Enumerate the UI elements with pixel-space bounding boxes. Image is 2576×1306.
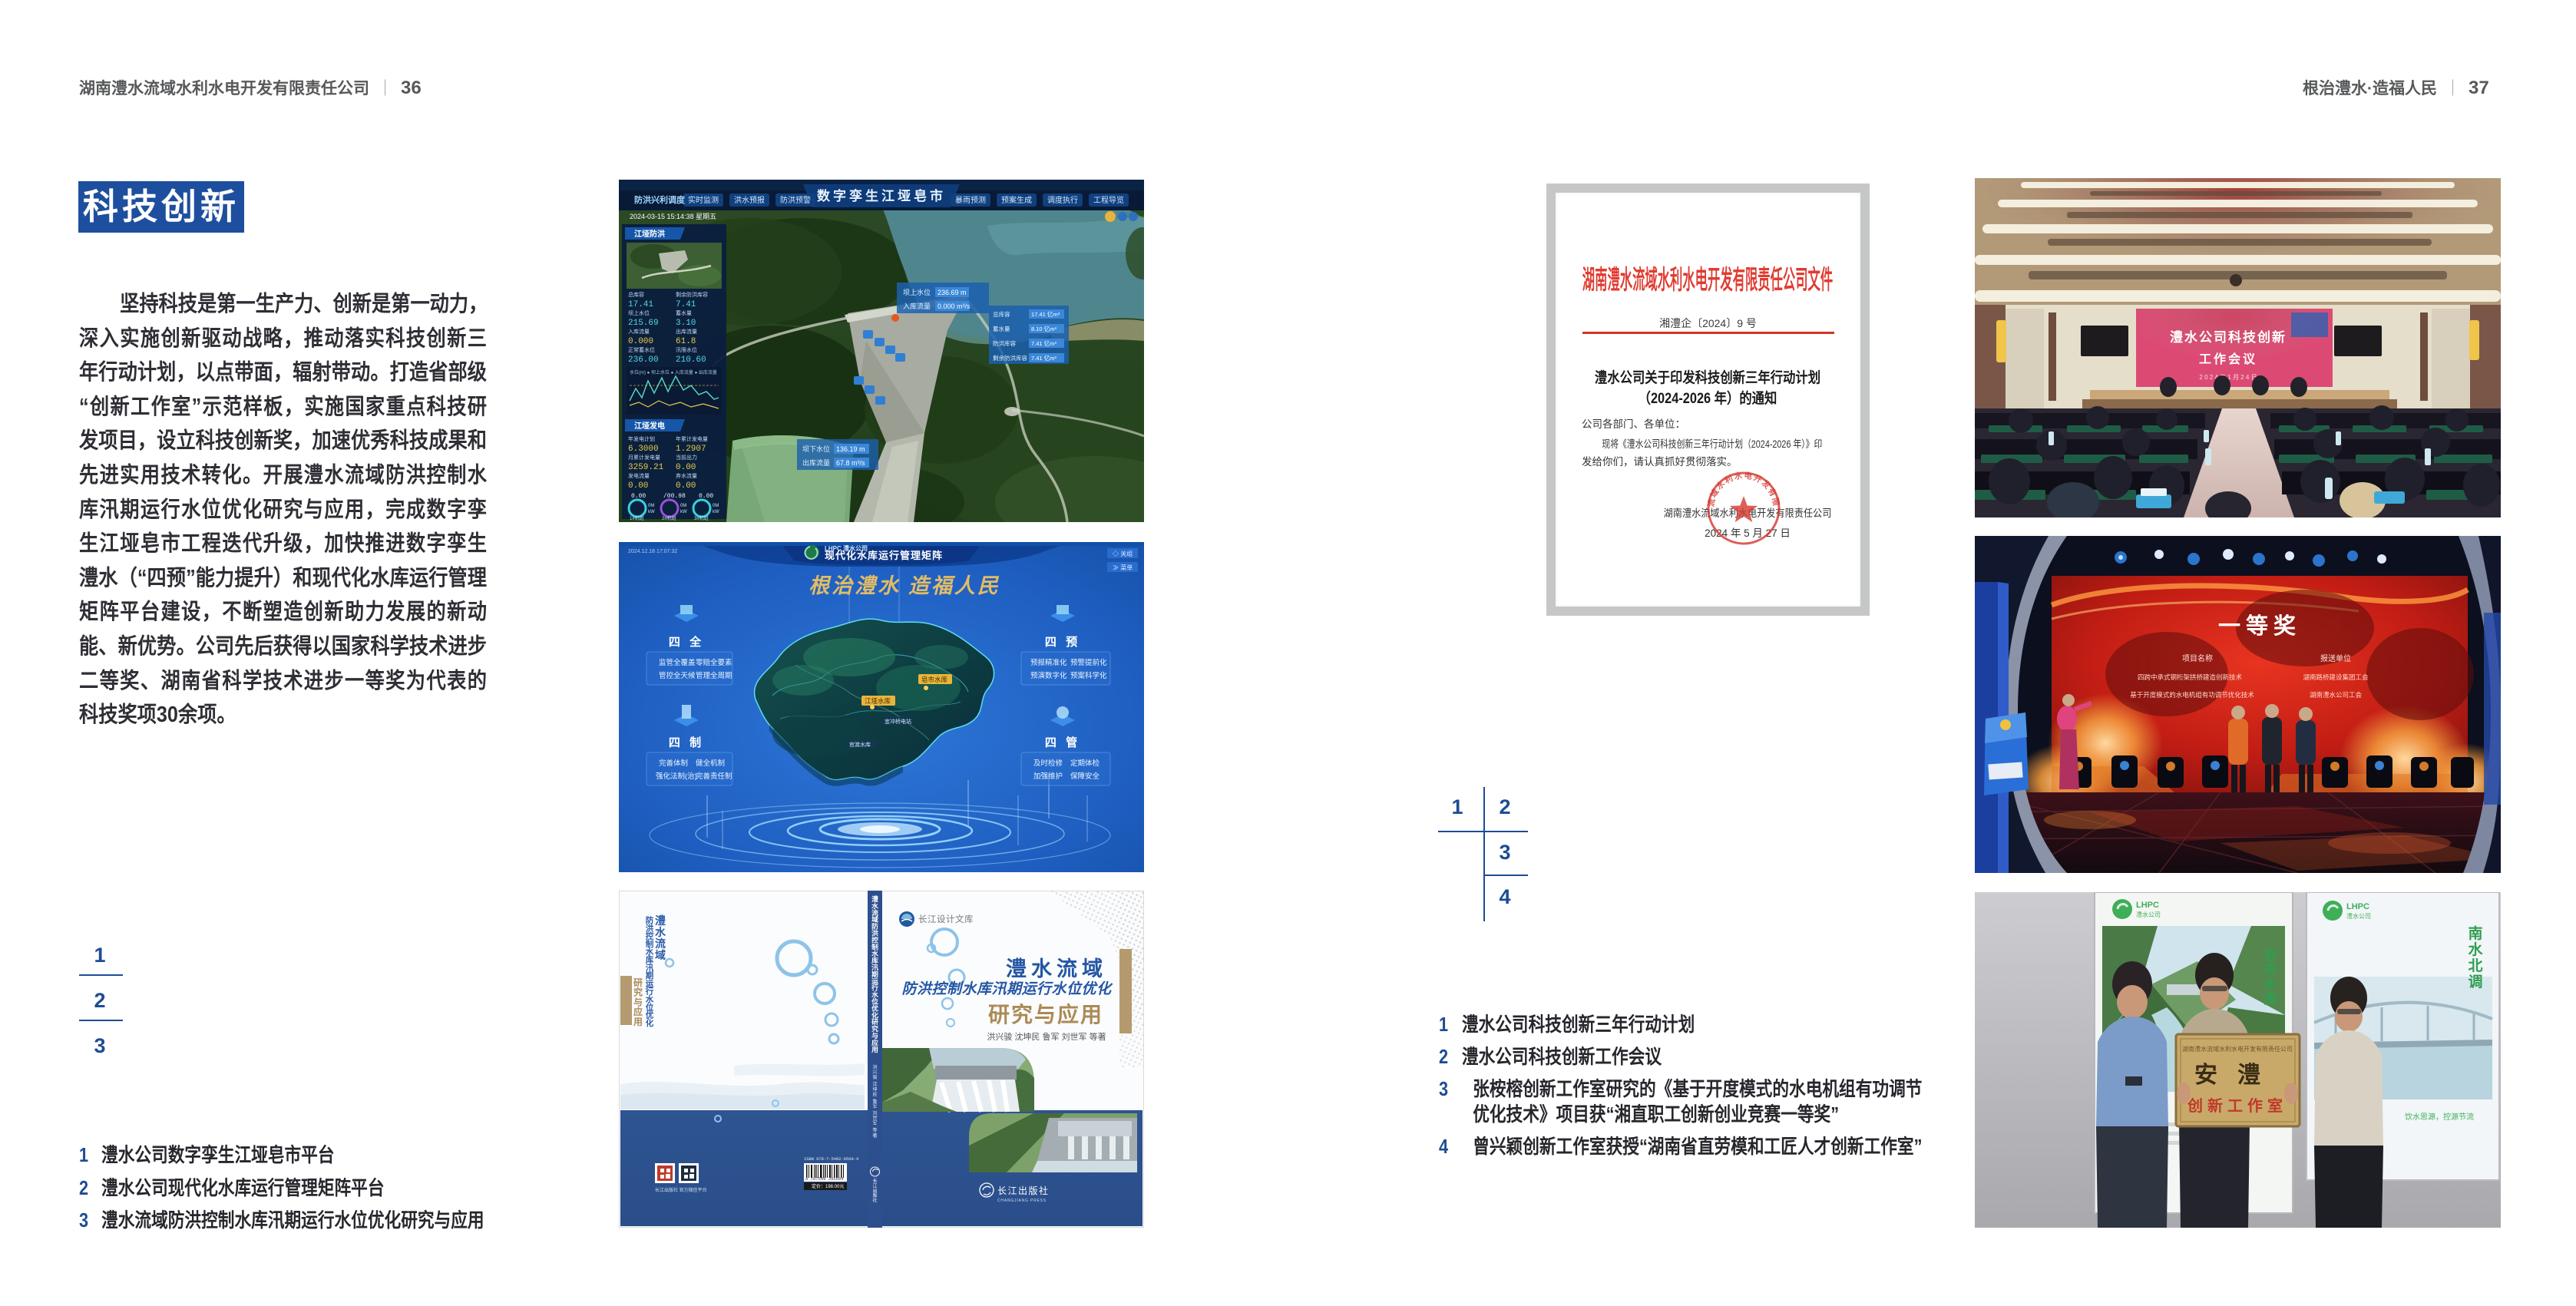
svg-text:湖南澧水公司工会: 湖南澧水公司工会 bbox=[2310, 691, 2363, 699]
svg-text:饮水思源，控源节流: 饮水思源，控源节流 bbox=[2405, 1112, 2474, 1122]
svg-text:kW: kW bbox=[680, 510, 687, 514]
svg-text:水位(m) ● 坝上水位 ● 入库流量 ● 出库流量: 水位(m) ● 坝上水位 ● 入库流量 ● 出库流量 bbox=[630, 369, 717, 375]
svg-text:kW: kW bbox=[713, 510, 719, 514]
svg-text:加强维护: 加强维护 bbox=[1033, 772, 1063, 781]
svg-text:0.000: 0.000 bbox=[628, 337, 653, 346]
svg-text:预警提前化: 预警提前化 bbox=[1070, 658, 1107, 667]
svg-text:年累计发电量: 年累计发电量 bbox=[676, 435, 708, 443]
svg-text:蓄水量: 蓄水量 bbox=[676, 309, 692, 317]
svg-text:136.19 m: 136.19 m bbox=[836, 445, 865, 453]
svg-text:7.41 亿m³: 7.41 亿m³ bbox=[1031, 354, 1057, 362]
svg-text:预报精准化: 预报精准化 bbox=[1030, 658, 1067, 667]
svg-text:215.69: 215.69 bbox=[628, 319, 659, 328]
svg-text:完善体制: 完善体制 bbox=[659, 759, 688, 768]
svg-text:LHPC: LHPC bbox=[2136, 901, 2159, 910]
svg-text:数字孪生江垭皂市: 数字孪生江垭皂市 bbox=[817, 188, 946, 203]
svg-text:3#机组: 3#机组 bbox=[694, 515, 709, 521]
svg-text:长江出版社: 长江出版社 bbox=[872, 1178, 877, 1204]
svg-text:1#机组: 1#机组 bbox=[630, 515, 644, 521]
svg-text:入库流量: 入库流量 bbox=[903, 302, 931, 310]
svg-text:调度执行: 调度执行 bbox=[1047, 195, 1078, 205]
svg-text:坝下水位: 坝下水位 bbox=[802, 445, 830, 453]
svg-text:防洪预警: 防洪预警 bbox=[780, 195, 811, 205]
svg-text:江垭发电: 江垭发电 bbox=[634, 421, 665, 431]
svg-text:江垭防洪: 江垭防洪 bbox=[634, 229, 665, 239]
svg-text:/00.98: /00.98 bbox=[663, 493, 686, 500]
svg-text:澧水流域: 澧水流域 bbox=[655, 914, 666, 961]
svg-text:南水北调: 南水北调 bbox=[2468, 925, 2483, 990]
svg-text:根治澧水 造福人民: 根治澧水 造福人民 bbox=[809, 574, 1000, 597]
svg-text:8.10 亿m³: 8.10 亿m³ bbox=[1031, 325, 1057, 332]
svg-text:坝上水位: 坝上水位 bbox=[903, 288, 931, 296]
svg-text:2#机组: 2#机组 bbox=[662, 515, 676, 521]
svg-text:坝上水位: 坝上水位 bbox=[628, 309, 650, 317]
svg-text:湖南澧水流域水利水电开发有限责任公司: 湖南澧水流域水利水电开发有限责任公司 bbox=[2182, 1045, 2293, 1053]
svg-text:官渡水库: 官渡水库 bbox=[849, 741, 871, 748]
svg-text:澧水公司: 澧水公司 bbox=[2346, 912, 2371, 920]
svg-text:澧水流域: 澧水流域 bbox=[1006, 957, 1107, 980]
svg-text:2024-03-15 15:14:38 星期五: 2024-03-15 15:14:38 星期五 bbox=[630, 213, 716, 220]
svg-text:预案生成: 预案生成 bbox=[1001, 195, 1032, 205]
svg-text:防洪控制水库汛期运行水位优化: 防洪控制水库汛期运行水位优化 bbox=[645, 915, 654, 1028]
svg-text:防洪控制水库汛期运行水位优化: 防洪控制水库汛期运行水位优化 bbox=[901, 980, 1113, 997]
svg-text:17.41: 17.41 bbox=[628, 300, 653, 309]
svg-text:零赔全要素: 零赔全要素 bbox=[696, 658, 732, 667]
svg-text:健全机制: 健全机制 bbox=[696, 759, 725, 768]
svg-text:宜冲桥电站: 宜冲桥电站 bbox=[885, 718, 911, 725]
svg-text:7.41: 7.41 bbox=[676, 300, 696, 309]
svg-text:◇ 关组: ◇ 关组 bbox=[1113, 550, 1133, 557]
svg-text:防洪库容: 防洪库容 bbox=[993, 339, 1016, 347]
svg-text:洪水预报: 洪水预报 bbox=[734, 195, 765, 205]
svg-text:四 全: 四 全 bbox=[669, 635, 704, 649]
svg-text:长江出版社: 长江出版社 bbox=[997, 1185, 1050, 1196]
svg-text:报送单位: 报送单位 bbox=[2320, 653, 2351, 663]
svg-text:0M: 0M bbox=[713, 504, 719, 508]
svg-text:皂市水库: 皂市水库 bbox=[921, 676, 948, 683]
svg-text:0M: 0M bbox=[680, 504, 686, 508]
svg-text:管控全天候: 管控全天候 bbox=[659, 671, 696, 680]
svg-text:年发电计划: 年发电计划 bbox=[628, 435, 655, 443]
svg-text:项目名称: 项目名称 bbox=[2182, 653, 2213, 663]
svg-text:工程导览: 工程导览 bbox=[1093, 195, 1124, 205]
svg-text:预案科学化: 预案科学化 bbox=[1070, 671, 1107, 680]
svg-text:一等奖: 一等奖 bbox=[2218, 613, 2301, 639]
svg-text:汛限水位: 汛限水位 bbox=[676, 346, 697, 354]
svg-text:0.00: 0.00 bbox=[676, 463, 696, 472]
svg-text:研究与应用: 研究与应用 bbox=[988, 1002, 1103, 1027]
svg-text:6.3000: 6.3000 bbox=[628, 445, 659, 454]
svg-text:发电流量: 发电流量 bbox=[628, 472, 650, 480]
svg-text:LHPC: LHPC bbox=[2346, 902, 2369, 911]
svg-text:剩余防洪库容: 剩余防洪库容 bbox=[676, 291, 708, 299]
svg-text:入库流量: 入库流量 bbox=[628, 328, 650, 336]
svg-text:创新工作室: 创新工作室 bbox=[2187, 1096, 2287, 1115]
svg-text:暴雨预测: 暴雨预测 bbox=[955, 195, 986, 205]
svg-text:61.8: 61.8 bbox=[676, 337, 696, 346]
svg-text:3.10: 3.10 bbox=[676, 319, 696, 328]
svg-text:剩余防洪库容: 剩余防洪库容 bbox=[993, 354, 1027, 362]
svg-text:正常蓄水位: 正常蓄水位 bbox=[628, 346, 655, 354]
svg-text:210.60: 210.60 bbox=[676, 355, 706, 365]
svg-text:0.00: 0.00 bbox=[676, 481, 696, 491]
svg-text:洪兴骏沈坤民鲁军刘世军等著: 洪兴骏沈坤民鲁军刘世军等著 bbox=[872, 1064, 877, 1139]
svg-text:保障安全: 保障安全 bbox=[1070, 772, 1100, 781]
svg-text:监管全覆盖: 监管全覆盖 bbox=[659, 658, 696, 667]
svg-text:定期体检: 定期体检 bbox=[1070, 759, 1100, 768]
svg-text:长江设计文库: 长江设计文库 bbox=[918, 914, 974, 924]
svg-text:9 787549 295694: 9 787549 295694 bbox=[805, 1176, 844, 1182]
svg-text:安澧: 安澧 bbox=[2194, 1063, 2280, 1088]
svg-text:四跨中承式钢桁架拱桥建造创新技术: 四跨中承式钢桁架拱桥建造创新技术 bbox=[2138, 673, 2243, 681]
svg-text:完善责任制: 完善责任制 bbox=[696, 772, 732, 781]
svg-text:管理全周期: 管理全周期 bbox=[696, 671, 732, 680]
svg-text:月累计发电量: 月累计发电量 bbox=[628, 454, 660, 461]
svg-text:7.41 亿m³: 7.41 亿m³ bbox=[1031, 339, 1057, 347]
svg-text:236.00: 236.00 bbox=[628, 355, 659, 365]
svg-text:0M: 0M bbox=[648, 504, 654, 508]
svg-text:及时检修: 及时检修 bbox=[1033, 759, 1063, 768]
svg-text:强化法制(治): 强化法制(治) bbox=[656, 772, 697, 781]
svg-text:基于开度模式的水电机组有功调节优化技术: 基于开度模式的水电机组有功调节优化技术 bbox=[2130, 691, 2254, 699]
svg-text:17.41 亿m³: 17.41 亿m³ bbox=[1031, 310, 1060, 318]
svg-text:四 管: 四 管 bbox=[1045, 736, 1080, 749]
svg-text:澧水流域防洪控制水库汛期运行水位优化研究与应用: 澧水流域防洪控制水库汛期运行水位优化研究与应用 bbox=[871, 894, 878, 1053]
svg-text:弃水流量: 弃水流量 bbox=[676, 472, 697, 480]
svg-text:洪兴骏 沈坤民 鲁军 刘世军 等著: 洪兴骏 沈坤民 鲁军 刘世军 等著 bbox=[987, 1031, 1106, 1042]
svg-text:工作会议: 工作会议 bbox=[2199, 352, 2257, 366]
svg-text:四 预: 四 预 bbox=[1045, 636, 1080, 649]
svg-text:皂市水库: 皂市水库 bbox=[2264, 947, 2278, 1007]
svg-text:≫ 菜单: ≫ 菜单 bbox=[1113, 564, 1133, 571]
svg-text:2024.12.18 17:07:32: 2024.12.18 17:07:32 bbox=[628, 549, 677, 554]
svg-text:防洪兴利调度: 防洪兴利调度 bbox=[634, 194, 686, 205]
svg-text:出库流量: 出库流量 bbox=[676, 328, 697, 336]
svg-text:江垭水库: 江垭水库 bbox=[865, 697, 891, 705]
svg-text:出库流量: 出库流量 bbox=[802, 458, 830, 467]
svg-text:1.2907: 1.2907 bbox=[676, 445, 706, 454]
svg-text:ISBN 978-7-5492-9569-4: ISBN 978-7-5492-9569-4 bbox=[804, 1157, 858, 1162]
svg-text:kW: kW bbox=[648, 510, 655, 514]
svg-text:长江出版社 官方微信平台: 长江出版社 官方微信平台 bbox=[655, 1187, 707, 1193]
svg-text:澧水公司科技创新: 澧水公司科技创新 bbox=[2170, 329, 2287, 345]
svg-text:预演数字化: 预演数字化 bbox=[1030, 671, 1067, 680]
svg-text:总库容: 总库容 bbox=[993, 310, 1010, 318]
svg-text:澧水公司: 澧水公司 bbox=[2136, 911, 2161, 918]
svg-text:0.000 m³/s: 0.000 m³/s bbox=[937, 303, 971, 310]
svg-text:CHANGJIANG PRESS: CHANGJIANG PRESS bbox=[997, 1199, 1047, 1203]
svg-text:研究与应用: 研究与应用 bbox=[633, 977, 643, 1027]
svg-text:当前出力: 当前出力 bbox=[676, 454, 697, 461]
svg-text:236.69 m: 236.69 m bbox=[937, 289, 967, 296]
svg-text:四 制: 四 制 bbox=[669, 736, 704, 749]
svg-text:定价：198.00元: 定价：198.00元 bbox=[812, 1183, 844, 1189]
svg-text:3259.21: 3259.21 bbox=[628, 463, 664, 472]
svg-text:湖南路桥建设集团工会: 湖南路桥建设集团工会 bbox=[2303, 673, 2369, 681]
svg-text:总库容: 总库容 bbox=[628, 291, 644, 299]
svg-text:现代化水库运行管理矩阵: 现代化水库运行管理矩阵 bbox=[825, 550, 943, 561]
svg-text:实时监测: 实时监测 bbox=[688, 195, 719, 205]
svg-text:蓄水量: 蓄水量 bbox=[993, 325, 1010, 332]
svg-text:67.8 m³/s: 67.8 m³/s bbox=[836, 459, 865, 467]
svg-text:0.00: 0.00 bbox=[628, 481, 648, 491]
